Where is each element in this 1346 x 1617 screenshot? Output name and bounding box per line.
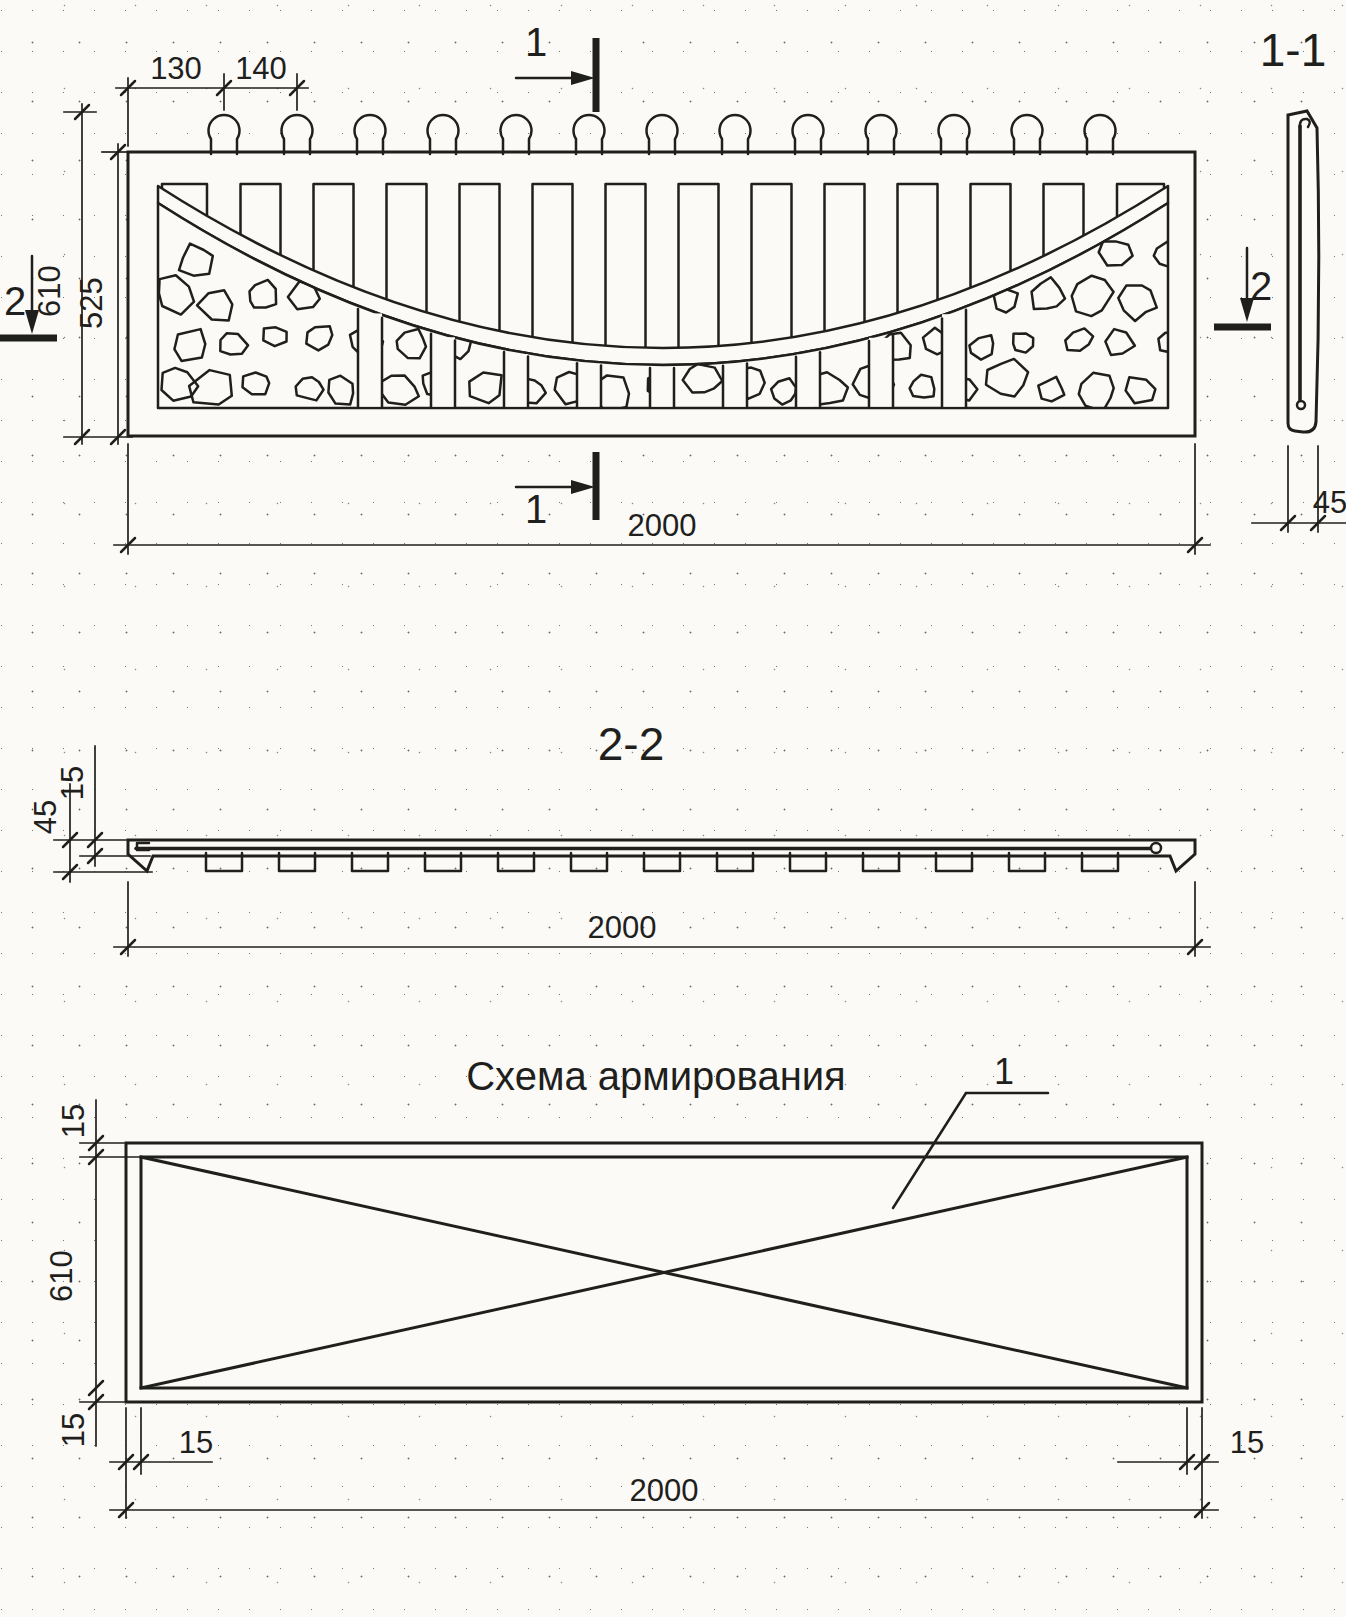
picket: [501, 115, 532, 154]
section-cut-1-top: 1: [516, 20, 596, 112]
picket: [865, 115, 896, 154]
dim-label-610: 610: [32, 265, 67, 317]
fence-panel-drawing: 130 140 610 525 2000 1: [0, 0, 1346, 1617]
dim-45: 45: [1252, 446, 1346, 532]
picket-bar-fill: [942, 314, 966, 406]
picket-bar-fill: [723, 365, 747, 407]
picket: [939, 115, 970, 154]
cut-arrow-icon: [571, 71, 595, 85]
dim-label-45: 45: [1313, 485, 1346, 520]
dim-cover-right: 15: [1118, 1408, 1264, 1518]
picket: [647, 115, 678, 154]
cut-label-2: 2: [1250, 264, 1272, 308]
scheme-title: Схема армирования: [466, 1054, 846, 1098]
picket: [355, 115, 386, 154]
cut-label-1: 1: [525, 20, 547, 64]
dim-label-15-top: 15: [56, 1104, 91, 1138]
callout-label-1: 1: [994, 1051, 1014, 1092]
picket-bar-fill: [577, 365, 601, 407]
section-2-2: 2-2 15 45 2000: [28, 718, 1210, 956]
picket: [282, 115, 313, 154]
dim-label-525: 525: [74, 277, 109, 329]
picket: [1011, 115, 1042, 154]
dim-length-2000: 2000: [110, 1473, 1218, 1510]
dim-left: 610 525: [32, 104, 132, 444]
section-title: 2-2: [598, 718, 664, 770]
cut-arrow-icon: [571, 480, 595, 494]
dim-top: 130 140: [116, 51, 308, 146]
dim-label-140: 140: [235, 51, 287, 86]
dim-label-15: 15: [179, 1425, 213, 1460]
picket-bar-fill: [358, 313, 382, 406]
picket-bar-fill: [650, 368, 674, 407]
panel-plan-outline: [128, 840, 1195, 871]
picket: [1085, 115, 1116, 154]
front-view: 130 140 610 525 2000 1: [0, 20, 1272, 554]
cut-label-1: 1: [525, 487, 547, 531]
dim-label-2000: 2000: [588, 910, 657, 945]
rebar-hook-bottom: [1297, 401, 1305, 409]
dim-label-610: 610: [44, 1250, 79, 1302]
drawing-sheet: 130 140 610 525 2000 1: [0, 0, 1346, 1617]
cut-label-2: 2: [4, 279, 26, 323]
dim-label-2000: 2000: [628, 508, 697, 543]
dim-bottom: 2000: [114, 444, 1210, 554]
panel-profile: [1288, 111, 1319, 432]
dim-label-15: 15: [55, 766, 90, 800]
rebar-hook-right: [1151, 843, 1161, 853]
dim-bottom-2000: 2000: [114, 882, 1210, 956]
dim-label-45: 45: [28, 800, 63, 834]
picket: [427, 115, 458, 154]
cut-arrow-icon: [25, 310, 39, 334]
picket-bar-fill: [431, 337, 455, 406]
section-cut-1-bottom: 1: [516, 452, 596, 531]
picket-bar-fill: [796, 355, 820, 407]
dim-label-15-bottom: 15: [56, 1413, 91, 1447]
picket: [719, 115, 750, 154]
section-cut-2-right: 2: [1214, 248, 1272, 327]
picket-bar-fill: [504, 354, 528, 406]
picket: [574, 115, 605, 154]
reinforcement-scheme: Схема армирования 1 15 610 15 15: [44, 1051, 1264, 1518]
picket-bar-fill: [869, 338, 893, 407]
section-title: 1-1: [1260, 24, 1326, 76]
dim-label-130: 130: [150, 51, 202, 86]
picket: [209, 115, 240, 154]
picket-row: [209, 115, 1116, 154]
dim-label-15: 15: [1230, 1425, 1264, 1460]
dim-label-2000: 2000: [630, 1473, 699, 1508]
picket: [792, 115, 823, 154]
